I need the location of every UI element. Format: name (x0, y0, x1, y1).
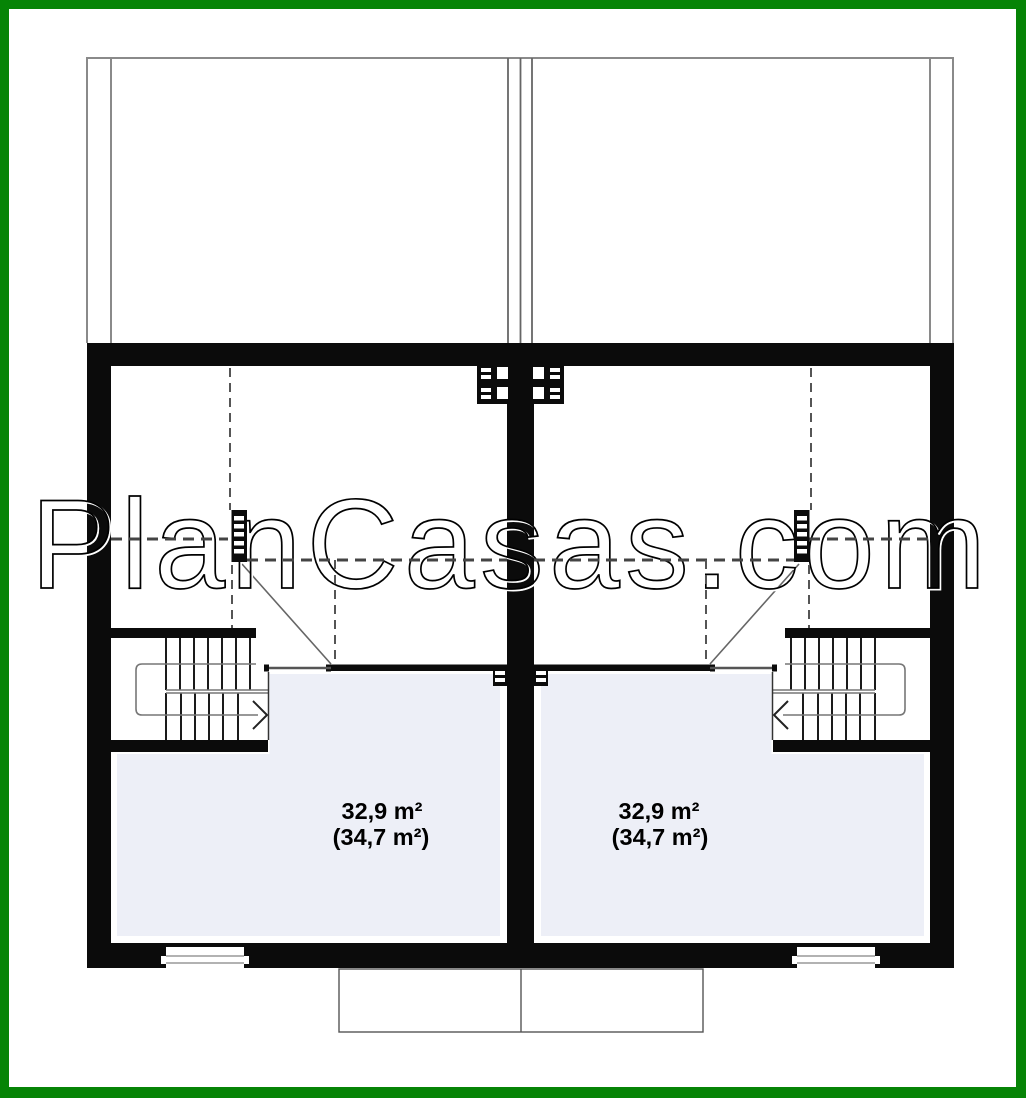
svg-text:32,9 m²: 32,9 m² (342, 798, 423, 824)
svg-text:PlanCasas.com: PlanCasas.com (31, 473, 992, 615)
svg-text:(34,7 m²): (34,7 m²) (333, 824, 430, 850)
svg-text:(34,7 m²): (34,7 m²) (612, 824, 709, 850)
svg-text:32,9 m²: 32,9 m² (619, 798, 700, 824)
